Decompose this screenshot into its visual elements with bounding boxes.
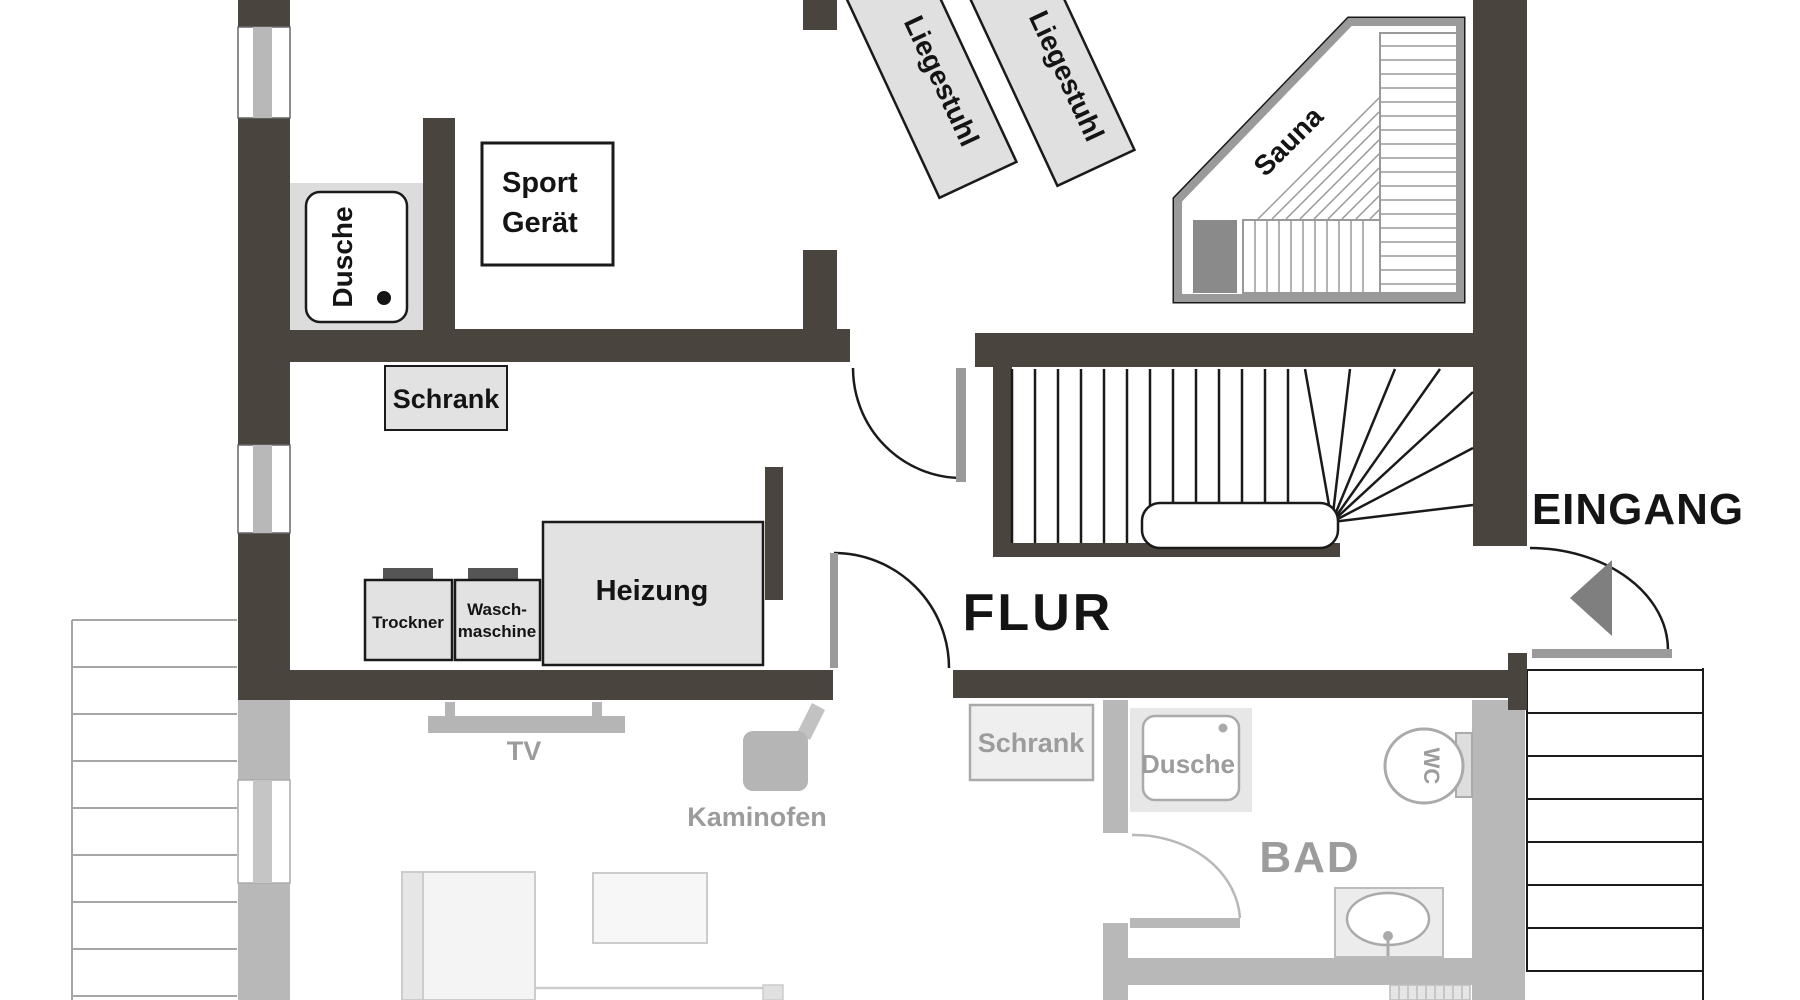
upper-schrank-label: Schrank <box>393 384 501 414</box>
lower-floor-layer: TV Kaminofen Schrank Dusche <box>238 700 1525 1000</box>
shower-label: Dusche <box>327 206 358 307</box>
wall-gym-right-bottom <box>803 250 837 362</box>
waschmaschine-label-line2: maschine <box>458 622 536 641</box>
sauna-heater <box>1193 220 1237 293</box>
sport-equipment-box <box>482 143 613 265</box>
window-left-top <box>238 27 290 118</box>
wall-flur-bottom <box>953 670 1527 698</box>
tv-unit <box>428 702 625 733</box>
lower-wall-left-upper <box>238 700 290 780</box>
wc-label: WC <box>1419 748 1444 785</box>
radiator <box>1390 985 1470 1000</box>
bad-door <box>1130 835 1240 928</box>
waschmaschine-box <box>455 580 540 660</box>
wall-right-outer <box>1473 0 1527 546</box>
flur-room-label: FLUR <box>963 584 1114 642</box>
bad-room-label: BAD <box>1259 833 1360 882</box>
trockner-hookup <box>383 568 433 580</box>
entrance-arrow-icon <box>1570 560 1612 636</box>
heizung-label: Heizung <box>596 575 709 607</box>
lower-wall-bad-left-lower <box>1103 923 1128 1000</box>
waschmaschine-label-line1: Wasch- <box>467 600 527 619</box>
kaminofen-stove <box>743 703 825 791</box>
sauna-bench-right <box>1380 33 1457 293</box>
wall-shower-right <box>423 118 455 329</box>
sauna-bench-bottom <box>1243 220 1380 293</box>
wall-gym-bottom <box>238 329 850 362</box>
waschmaschine-hookup <box>468 568 518 580</box>
window-left-middle <box>238 445 290 533</box>
window-left-lower <box>238 780 290 883</box>
tv-label: TV <box>507 736 542 766</box>
sofa <box>402 872 535 1000</box>
stair-handrail <box>1142 503 1338 548</box>
lower-wall-left-lower <box>238 883 290 1000</box>
table <box>593 873 707 943</box>
door-stairwell <box>853 368 966 482</box>
lower-wall-bad-right <box>1472 700 1525 1000</box>
wall-left-mid <box>238 118 290 445</box>
entrance-door <box>1530 548 1672 658</box>
kaminofen-label: Kaminofen <box>687 802 827 832</box>
lower-wall-bad-bottom <box>1128 958 1472 985</box>
entrance-steps <box>1527 668 1703 1000</box>
wall-entrance-stub <box>1508 653 1527 710</box>
door-flur-lower <box>830 553 949 668</box>
wall-utility-bottom <box>238 670 833 700</box>
lower-wall-bad-left-upper <box>1103 700 1128 833</box>
lowboard <box>535 985 783 1000</box>
wall-gym-right-top <box>803 0 837 30</box>
floor-plan-svg: TV Kaminofen Schrank Dusche <box>0 0 1800 1000</box>
sink <box>1335 888 1443 957</box>
sport-label-line2: Gerät <box>502 207 578 239</box>
wall-utility-stub <box>765 467 783 600</box>
sauna: Sauna <box>1178 22 1460 298</box>
trockner-label: Trockner <box>372 613 444 632</box>
lower-dusche-label: Dusche <box>1141 749 1235 779</box>
sport-label-line1: Sport <box>502 167 578 199</box>
lower-schrank-label: Schrank <box>978 728 1086 758</box>
wall-stair-top <box>975 333 1527 367</box>
wall-stair-left <box>993 367 1012 557</box>
eingang-label: EINGANG <box>1532 485 1744 534</box>
floor-plan-canvas: TV Kaminofen Schrank Dusche <box>0 0 1800 1000</box>
wall-left-cap <box>238 0 290 27</box>
exterior-stairs-left <box>72 620 237 1000</box>
